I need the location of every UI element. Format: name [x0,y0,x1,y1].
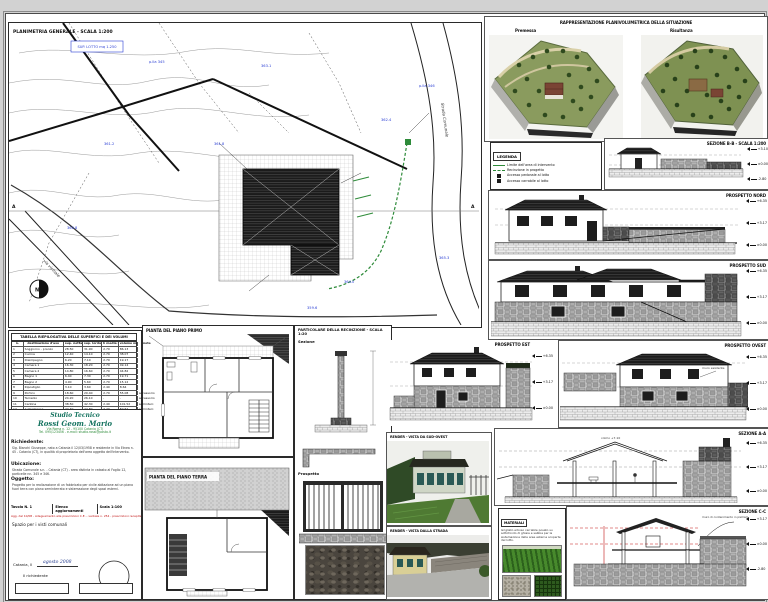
tree-dot [589,95,594,100]
renders3d-title: RAPPRESENTAZIONE PLANIVOLUMETRICA DELLA … [485,20,767,25]
site-plan-panel: A A [8,22,482,328]
table-cell: 16.60 [83,369,102,373]
quota-marker: ±0.00 [746,243,767,247]
tree-dot [513,89,518,94]
table-cell: 14.10 [83,353,102,357]
level-triangle-icon [532,380,535,384]
via-label: via vicinale [42,258,61,278]
quota-marker: -2.80 [746,567,767,571]
level-triangle-icon [746,465,749,469]
legend-item-label: Accesso pedonale al lotto [507,174,549,177]
recinzione-title: PARTICOLARE DELLA RECINZIONE - SCALA 1:2… [298,328,388,337]
tree-dot [695,65,700,70]
tree-dot [709,49,714,54]
sezione-cc-drawing: muro di contenimento in pietrame [568,512,748,596]
table-cell: 28.50 [64,347,83,351]
table-cell: 3.60 [83,385,102,389]
ovest-note: muro esistente [702,366,725,370]
level-triangle-icon [746,321,749,325]
table-cell: 44.82 [119,369,138,373]
tree-dot [743,79,748,84]
table-cell: seminterr. [138,402,156,406]
tree-dot [537,89,542,94]
table-cell: Cantina [24,402,64,406]
table-cell: Cucina [24,353,64,357]
render-left-label: Premessa [515,28,536,33]
quota-marker: ±0.00 [747,162,768,166]
level-triangle-icon [746,517,749,521]
quota-value: ±0.00 [757,321,767,325]
quota-value: +3.17 [543,380,553,384]
quota-marker: ±0.00 [746,542,767,546]
tree-dot [547,65,552,70]
site-plan-drawing: A A [9,23,479,325]
gravel-photo [502,575,531,597]
visti-box: Spazio per i visti comunali [9,520,141,559]
scala-label: Scala 1:100 [98,504,141,514]
road-right [411,23,479,325]
table-cell [138,358,156,362]
pianta-terra-drawing: PIANTA DEL PIANO TERRA [143,458,291,597]
quota-marker: -2.80 [747,177,768,181]
tree-dot [709,115,714,120]
table-cell: Soggiorno - pranzo [24,347,64,351]
table-cell: 55.08 [119,391,138,395]
table-cell [138,369,156,373]
table-cell: 42.30 [83,402,102,406]
level-triangle-icon [747,147,750,151]
quota-markers: +6.35+3.17±0.00 [746,269,767,325]
level-triangle-icon [746,542,749,546]
table-cell: 7.10 [83,358,102,362]
quota-markers: +3.10±0.00-2.80 [747,147,768,181]
table-cell: 19.17 [119,358,138,362]
table-cell: 11 [12,402,24,406]
tree-dot [679,55,684,60]
legend-panel: LEGENDA Limite dell'area di interventoRe… [490,142,602,190]
signature-field-2 [79,583,133,594]
section-tag-right: A [471,204,475,210]
pianta-primo-panel: PIANTA DEL PIANO PRIMO [142,325,294,457]
tree-dot [723,55,728,60]
prospetto-est-panel: PROSPETTO EST +6.35+3.17±0.00 [388,340,554,426]
level-triangle-icon [746,489,749,493]
quota-marker: +3.17 [746,295,767,299]
table-cell: 15.12 [119,380,138,384]
table-cell: 19.71 [119,375,138,379]
table-cell: sup. lorda mq [83,342,102,346]
richiedente-label: Richiedente: [11,440,139,445]
table-cell: 38.50 [64,402,83,406]
level-triangle-icon [746,243,749,247]
tree-dot [545,49,550,54]
table-cell: destinazione d'uso [24,342,64,346]
tree-dot [543,113,548,118]
prospetto-ovest-panel: PROSPETTO OVEST muro esistente +6.35+3.1… [558,340,768,428]
table-cell: Bagno 2 [24,380,64,384]
stairs-dark [169,534,187,576]
area-table-title: TABELLA RIEPILOGATIVA DELLE SUPERFICI E … [11,333,137,341]
table-cell: 7.30 [83,375,102,379]
table-cell [138,347,156,351]
ubicazione-label: Ubicazione: [11,462,139,467]
legend-item-label: Limite dell'area di intervento [507,164,555,167]
sezione-sublabel: Sezione [298,339,388,344]
lot-boundary [9,23,407,171]
oggetto-box: Oggetto: Progetto per la realizzazione d… [9,476,141,505]
aggiornamenti-label: Elenco aggiornamenti [53,504,97,514]
parcel-label: p.lla 345 [149,60,165,64]
tree-dot [675,103,680,108]
quota-markers: +3.17±0.00-2.80 [746,517,767,571]
table-cell [138,380,156,384]
quota-markers: +6.35+3.17±0.00 [746,441,767,493]
prospetto-est-drawing [388,346,534,424]
legend-item: Limite dell'area di intervento [493,164,599,167]
quota-value: ±0.00 [757,407,767,411]
signature-field-1 [15,583,69,594]
level-triangle-icon [746,407,749,411]
render-strada-panel: RENDER - VISTA DALLA STRADA [386,526,492,600]
ubicazione-text: Strada Comunale s.n. - Catania (CT) - ar… [12,468,138,476]
tree-dot [579,85,584,90]
table-cell: 38.07 [119,353,138,357]
quota-marker: ±0.00 [746,321,767,325]
richiedente-box: Richiedente: Sig. Bianchi Giuseppe, nato… [9,439,141,462]
quota-marker: +6.35 [746,441,767,445]
sezione-bb-drawing [607,145,747,189]
quota-value: +6.35 [757,355,767,359]
table-cell: 2.70 [102,347,119,351]
table-cell: 3.10 [64,385,83,389]
quota-value: +3.17 [757,465,767,469]
level-triangle-icon [746,269,749,273]
pianta-primo-drawing [143,334,291,454]
legend-item-label: Recinzione in progetto [507,169,544,172]
sezione-aa-drawing: colmo +7.10 [497,433,745,503]
recinzione-prospetto-drawing [299,477,387,545]
tree-dot [517,63,522,68]
quota-marker: +6.35 [746,355,767,359]
prospetto-nord-panel: PROSPETTO NORD +6.35+3.17±0.00 [488,190,768,260]
tree-dot [531,55,536,60]
quota-value: +6.35 [757,441,767,445]
quota-value: ±0.00 [758,162,768,166]
table-cell: Bagno 1 [24,375,64,379]
quota-value: ±0.00 [543,406,553,410]
tree-dot [561,49,566,54]
quota-marker: ±0.00 [532,406,553,410]
quota-markers: +6.35+3.17±0.00 [746,199,767,247]
quota-value: +3.17 [757,295,767,299]
level-triangle-icon [532,406,535,410]
ridge-note: colmo +7.10 [601,436,620,440]
table-cell: 10 [12,396,24,400]
quota-value: +3.10 [758,147,768,151]
quota-marker: +3.17 [746,465,767,469]
table-cell: 18.60 [64,391,83,395]
prospetto-sublabel: Prospetto [298,471,388,476]
road-label: Strada Comunale [440,102,450,138]
table-cell: 12.40 [64,353,83,357]
quota-value: -2.80 [758,177,767,181]
table-cell: - [102,396,119,400]
pianta-terra-panel: PIANTA DEL PIANO TERRA [142,457,294,600]
quota-value: +6.35 [757,269,767,273]
prospetto-sud-drawing [491,266,743,338]
table-cell: 49.14 [119,364,138,368]
table-cell: 2.70 [102,358,119,362]
quota-marker: +3.17 [746,517,767,521]
access-symbol [493,174,505,178]
section-tag-left: A [12,204,16,210]
scanned-drawing-page: A A [0,0,768,602]
level-triangle-icon [746,567,749,571]
materiali-panel: MATERIALI Grigliato erboso carrabile pos… [498,508,566,600]
tree-dot [575,55,580,60]
table-cell: 20.40 [83,391,102,395]
grass-paver-photo [502,545,562,573]
table-cell: 3 [12,358,24,362]
studio-kind: Studio Tecnico [9,412,141,419]
house-3d [545,83,563,99]
table-cell: 2.70 [102,364,119,368]
table-cell: 18.20 [83,364,102,368]
render-sud-title: RENDER - VISTA DA SUD-OVEST [390,435,447,439]
parcel-label: 363.1 [261,64,271,68]
sup-box: SUP. LOTTO mq 1.250 [71,41,123,52]
tree-dot [527,103,532,108]
studio-box: Studio Tecnico Rossi Geom. Mario Via Rom… [9,409,141,441]
table-cell: 5 [12,369,24,373]
quota-markers: +6.35+3.17±0.00 [746,355,767,411]
quota-value: +6.35 [757,199,767,203]
line-swatch [493,165,505,166]
tree-dot [693,49,698,54]
tree-dot [525,77,530,82]
table-cell: sup. netta mq [64,342,83,346]
table-cell: 2.70 [102,353,119,357]
level-triangle-icon [746,295,749,299]
table-cell: 2.70 [102,380,119,384]
richiedente-text: Sig. Bianchi Giuseppe, nato a Catania il… [12,446,138,454]
table-cell: 26.10 [83,396,102,400]
table-cell: 7 [12,380,24,384]
firma-label: Il richiedente [23,573,48,578]
stone-wall-photo [305,545,385,595]
table-cell: 2 [12,353,24,357]
tree-dot [665,63,670,68]
quota-value: +3.17 [757,221,767,225]
tree-dot [727,107,732,112]
table-cell [138,385,156,389]
level-triangle-icon [746,221,749,225]
level-triangle-icon [532,354,535,358]
materiali-text: Grigliato erboso carrabile posato su sot… [501,529,563,544]
quota-marker: +6.35 [746,199,767,203]
table-cell: 6.20 [64,358,83,362]
table-cell: Camera 1 [24,364,64,368]
quota-value: -2.80 [757,567,766,571]
table-cell: 16.30 [64,364,83,368]
tree-dot [715,73,720,78]
render-right-label: Risultanza [670,28,693,33]
table-cell: - [119,396,138,400]
visti-label: Spazio per i visti comunali [12,522,138,527]
stairs [249,400,269,432]
quota-marker: +3.10 [747,147,768,151]
legend-item: Accesso pedonale al lotto [493,174,599,178]
parcel-label: 362.4 [381,118,392,122]
table-cell: 101.52 [119,402,138,406]
tree-dot [737,95,742,100]
table-cell: 6.40 [64,375,83,379]
tree-dot [705,93,710,98]
table-cell: 14.80 [64,369,83,373]
quota-marker: ±0.00 [746,489,767,493]
table-cell [138,353,156,357]
recinzione-muro-detail [301,445,381,469]
tree-dot [735,67,740,72]
table-cell: Disimpegno [24,358,64,362]
render-strada-title: RENDER - VISTA DALLA STRADA [390,529,448,533]
quota-markers: +6.35+3.17±0.00 [532,354,553,410]
table-cell: 2.70 [102,391,119,395]
north-arrow-icon: N [30,280,48,298]
sezione-aa-panel: SEZIONE A-A colmo +7.10 +6.35+3.17±0.00 [494,428,768,506]
parcel-label: 361.8 [214,142,225,146]
table-cell: 2.70 [102,369,119,373]
render-before-image [489,35,623,139]
table-cell: Terrazzo [24,396,64,400]
green-access-marker [405,139,411,145]
title-block: TABELLA RIEPILOGATIVA DELLE SUPERFICI E … [8,330,142,600]
quota-value: ±0.00 [757,542,767,546]
parcel-label: 359.6 [307,306,318,310]
svg-text:N: N [35,288,39,294]
tree-dot [719,99,724,104]
parcel-label: 364.0 [344,280,355,284]
table-cell: note [138,342,156,346]
render-sud-image [387,441,489,523]
tree-dot [661,89,666,94]
grid-paver-photo [534,575,563,597]
quota-marker: +6.35 [746,269,767,273]
ubicazione-box: Ubicazione: Strada Comunale s.n. - Catan… [9,461,141,477]
level-triangle-icon [747,177,750,181]
table-cell: 24.20 [64,396,83,400]
table-cell: 86.13 [119,347,138,351]
place-date-value: agosto 2008 [37,560,78,567]
place-date-label: Catania, lì [13,562,32,567]
quota-marker: +3.17 [532,380,553,384]
table-cell: 8.64 [119,385,138,389]
quota-marker: ±0.00 [746,407,767,411]
quota-marker: +6.35 [532,354,553,358]
tavola-number: Tavola N. 1 [9,504,53,514]
legend-item-label: Accesso carrabile al lotto [507,180,548,183]
tree-dot [673,77,678,82]
recinzione-panel: PARTICOLARE DELLA RECINZIONE - SCALA 1:2… [294,325,392,600]
table-cell: 8 [12,385,24,389]
table-cell [138,364,156,368]
table-cell: 31.90 [83,347,102,351]
level-triangle-icon [747,162,750,166]
line-swatch [493,170,505,171]
area-table-body: n.destinazione d'usosup. netta mqsup. lo… [11,341,137,419]
quota-value: ±0.00 [757,243,767,247]
level-triangle-icon [746,199,749,203]
table-cell: 6 [12,375,24,379]
legend-item: Accesso carrabile al lotto [493,179,599,183]
tree-dot [561,115,566,120]
table-cell: 9 [12,391,24,395]
quota-value: +3.17 [757,381,767,385]
quota-marker: +3.17 [746,221,767,225]
table-cell: Portico [24,391,64,395]
tree-dot [691,113,696,118]
level-triangle-icon [746,355,749,359]
table-cell: 5.60 [83,380,102,384]
table-cell: 2.40 [102,385,119,389]
quota-value: ±0.00 [757,489,767,493]
area-table: TABELLA RIEPILOGATIVA DELLE SUPERFICI E … [11,333,137,418]
table-cell [138,375,156,379]
drawing-sheet: A A [5,13,765,601]
tree-dot [587,67,592,72]
tree-dot [727,85,732,90]
studio-contacts: Tel. 095/123456 - e-mail: studio.rossi@p… [9,431,141,435]
signature-box: Catania, lì agosto 2008 Il richiedente [9,558,141,597]
render-sud-panel: RENDER - VISTA DA SUD-OVEST [386,432,492,526]
table-cell: 4 [12,364,24,368]
tree-dot [579,107,584,112]
table-cell: 4.90 [64,380,83,384]
table-cell: 2.40 [102,402,119,406]
pianta-terra-title: PIANTA DEL PIANO TERRA [149,475,208,480]
tree-dot [595,79,600,84]
render-strada-image [387,535,489,597]
recinzione-sezione-drawing [295,345,387,445]
table-cell: 1 [12,347,24,351]
table-cell: Ripostiglio [24,385,64,389]
table-cell: volume mc [119,342,138,346]
parcel-label: 360.8 [67,226,78,230]
pianta-primo-title: PIANTA DEL PIANO PRIMO [146,328,202,333]
parcel-label: 365.3 [439,256,449,260]
parcel-label: p.lla 346 [419,84,435,88]
oggetto-label: Oggetto: [11,477,139,482]
site-plan-title: PLANIMETRIA GENERALE - SCALA 1:200 [13,29,113,35]
level-triangle-icon [746,441,749,445]
quota-value: +3.17 [757,517,767,521]
level-triangle-icon [746,381,749,385]
table-cell: h media m [102,342,119,346]
oggetto-text: Progetto per la realizzazione di un fabb… [12,483,138,491]
materiali-title: MATERIALI [501,519,527,526]
tree-dot [571,99,576,104]
sezione-bb-panel: SEZIONE B-B - SCALA 1:200 +3.10±0.00-2.8… [604,138,768,190]
render-after-image [641,35,763,139]
renders3d-panel: RAPPRESENTAZIONE PLANIVOLUMETRICA DELLA … [484,16,768,142]
tree-dot [567,73,572,78]
cc-note: muro di contenimento in pietrame [702,515,748,519]
svg-text:SUP. LOTTO mq 1.250: SUP. LOTTO mq 1.250 [77,45,117,49]
quota-value: +6.35 [543,354,553,358]
legend-item: Recinzione in progetto [493,169,599,172]
table-cell: 2.70 [102,375,119,379]
prospetto-sud-panel: PROSPETTO SUD +6.35+3.17±0.00 [488,260,768,340]
